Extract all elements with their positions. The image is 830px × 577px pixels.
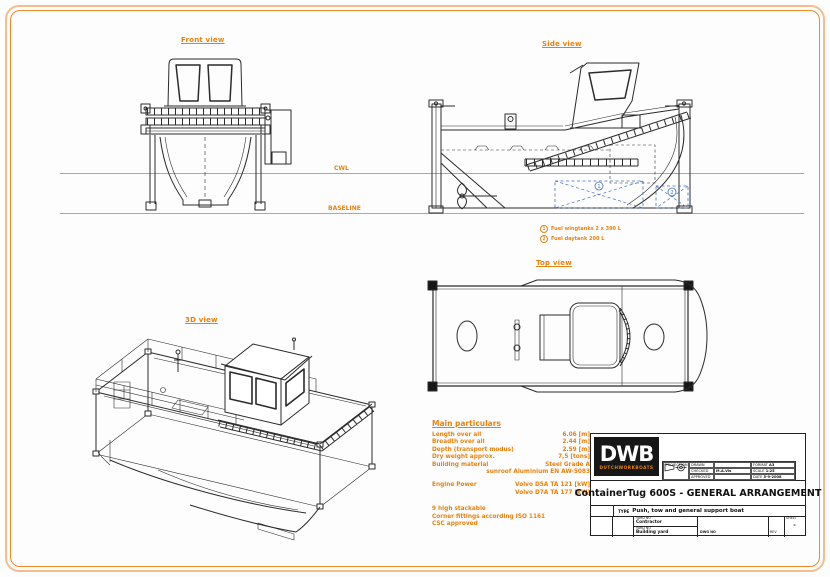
projection-cell: PROJECTION xyxy=(663,462,689,480)
row-label: Length over all xyxy=(432,432,481,439)
title-block-meta-table: DRAWN FORMAT A3 PROJECTION CHECKED M.A.V… xyxy=(662,461,796,481)
iso-hull xyxy=(98,440,320,540)
top-details xyxy=(457,286,664,386)
dwg-no-cell: DWG NO xyxy=(698,517,769,537)
row-value: 2.59 [m] xyxy=(562,447,590,454)
particular-row: Depth (transport modus) 2.59 [m] xyxy=(432,447,590,454)
top-engine-box xyxy=(540,315,570,360)
side-wheelhouse-window xyxy=(589,70,631,100)
particular-row: Breadth over all 2.44 [m] xyxy=(432,439,590,446)
particular-row: Length over all 6.06 [m] xyxy=(432,432,590,439)
top-view-drawing xyxy=(413,270,708,422)
row-label: Building material xyxy=(432,462,488,469)
yard-cells: YARD NO Contractor YARD NO Building yard xyxy=(634,517,698,537)
fuel-notes: 1 Fuel wingtanks 2 x 390 L 2 Fuel daytan… xyxy=(540,225,621,244)
footer-line: CSC approved xyxy=(432,521,590,528)
drawing-sheet: CWL BASELINE Front view Side view Top vi… xyxy=(0,0,830,577)
side-wheelhouse xyxy=(570,63,641,128)
fuel-tank-2: 2 xyxy=(656,186,688,208)
dwb-logo-subtext: DUTCHWORKBOATS xyxy=(599,465,653,470)
front-view-label: Front view xyxy=(181,36,225,44)
front-view-drawing xyxy=(138,52,303,227)
iso-wheelhouse xyxy=(221,338,312,425)
circled-1-icon: 1 xyxy=(540,225,548,233)
approved-value xyxy=(714,474,751,480)
row-value: Steel Grade A xyxy=(545,462,590,469)
drawing-title: ContainerTug 600S - GENERAL ARRANGEMENT xyxy=(591,481,805,506)
side-engineroom-dashed xyxy=(610,145,655,183)
front-deck-band xyxy=(141,104,270,134)
circled-2-icon: 2 xyxy=(540,235,548,243)
dwb-logo-text: DWB xyxy=(600,444,654,464)
note-1: 1 Fuel wingtanks 2 x 390 L xyxy=(540,225,621,233)
date-cell: DATE 5-9-2008 xyxy=(751,474,795,480)
propeller-icon xyxy=(458,183,498,209)
side-deck xyxy=(441,105,679,183)
title-block: DWB DUTCHWORKBOATS DRAWN FORMAT A3 PROJE… xyxy=(590,433,806,536)
row-value: 2.44 [m] xyxy=(562,439,590,446)
title-block-header: DWB DUTCHWORKBOATS DRAWN FORMAT A3 PROJE… xyxy=(591,434,805,481)
front-window-right xyxy=(208,65,232,101)
main-particulars: Main particulars Length over all 6.06 [m… xyxy=(432,419,590,528)
top-frame xyxy=(428,281,693,391)
row-value: 6.06 [m] xyxy=(562,432,590,439)
sheet-cell: SHEET - xyxy=(785,517,804,537)
particulars-footer: 9 high stackable Corner fittings accordi… xyxy=(432,506,590,528)
iso-view-drawing xyxy=(58,320,383,552)
type-value: Push, tow and general support boat xyxy=(632,508,744,514)
front-hull xyxy=(146,135,265,210)
top-wheelhouse xyxy=(570,303,620,368)
dwb-logo: DWB DUTCHWORKBOATS xyxy=(594,437,659,476)
note-2: 2 Fuel daytank 200 L xyxy=(540,235,621,243)
approved-label: APPROVED xyxy=(689,474,714,480)
footer-cell-empty-2 xyxy=(613,517,634,537)
title-block-footer: YARD NO Contractor YARD NO Building yard… xyxy=(591,517,805,537)
row-label: Dry weight approx. xyxy=(432,454,495,461)
baseline-label: BASELINE xyxy=(328,205,361,212)
svg-text:2: 2 xyxy=(670,190,673,196)
front-side-appendage xyxy=(265,110,291,164)
type-row-spacer xyxy=(591,506,614,516)
top-oval-fwd xyxy=(644,324,664,350)
yard-no-building-yard: YARD NO Building yard xyxy=(634,527,697,537)
side-view-drawing: 1 2 xyxy=(425,55,715,220)
row-label: Depth (transport modus) xyxy=(432,447,514,454)
top-windshield-arc xyxy=(620,308,630,366)
row-value: 7,5 [tons] xyxy=(558,454,590,461)
footer-line: Corner fittings according ISO 1161 xyxy=(432,514,590,521)
engine-power-row: Engine Power Volvo D5A TA 121 [kW] Volvo… xyxy=(432,482,590,497)
engine-label: Engine Power xyxy=(432,482,477,497)
particular-row: Building material Steel Grade A xyxy=(432,462,590,469)
front-wheelhouse xyxy=(164,59,246,106)
side-view-label: Side view xyxy=(542,40,582,48)
first-angle-projection-icon xyxy=(664,463,690,472)
note-1-text: Fuel wingtanks 2 x 390 L xyxy=(551,226,621,232)
top-view-label: Top view xyxy=(536,259,572,267)
type-label: TYPE xyxy=(618,509,629,514)
fuel-tank-1: 1 xyxy=(555,181,643,208)
row-label: Breadth over all xyxy=(432,439,485,446)
svg-text:1: 1 xyxy=(597,184,600,190)
type-row: TYPE Push, tow and general support boat xyxy=(591,506,805,517)
top-mast xyxy=(515,320,519,360)
particulars-title: Main particulars xyxy=(432,419,590,428)
footer-cell-empty-1 xyxy=(591,517,613,537)
top-oval-aft xyxy=(457,321,477,351)
front-window-left xyxy=(176,65,200,101)
particular-row: sunroof Aluminium EN AW-5083 xyxy=(432,469,590,476)
footer-line: 9 high stackable xyxy=(432,506,590,513)
note-2-text: Fuel daytank 200 L xyxy=(551,236,604,242)
row-value: sunroof Aluminium EN AW-5083 xyxy=(486,469,590,476)
side-hull xyxy=(441,115,684,208)
top-hull-outline xyxy=(521,280,707,392)
particular-row: Dry weight approx. 7,5 [tons] xyxy=(432,454,590,461)
rev-cell: REV xyxy=(769,517,785,537)
cwl-label: CWL xyxy=(334,165,349,172)
